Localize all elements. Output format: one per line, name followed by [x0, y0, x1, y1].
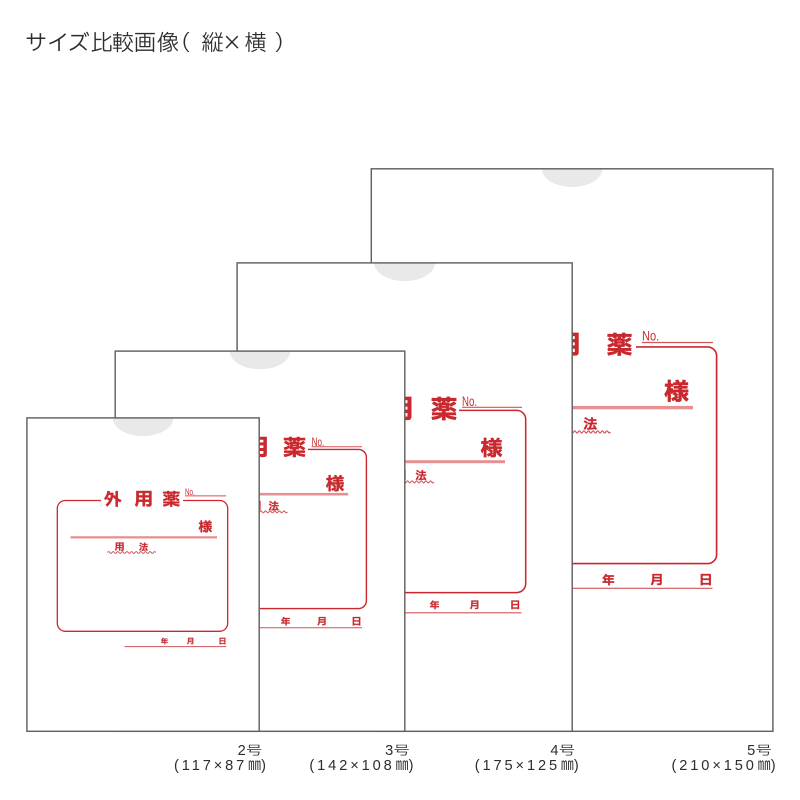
svg-text:No.: No. — [462, 394, 477, 409]
svg-text:2: 2 — [238, 743, 246, 759]
svg-text:): ) — [771, 758, 776, 774]
svg-text:5: 5 — [747, 743, 755, 759]
svg-text:No.: No. — [642, 328, 659, 344]
svg-text:): ) — [574, 758, 579, 774]
svg-text:(175×125: (175×125 — [475, 758, 560, 774]
svg-text:3: 3 — [385, 743, 393, 759]
svg-text:(210×150: (210×150 — [672, 758, 757, 774]
svg-text:): ) — [409, 758, 414, 774]
svg-text:(142×108: (142×108 — [309, 758, 394, 774]
svg-text:4: 4 — [550, 743, 558, 759]
svg-text:(117×87: (117×87 — [174, 758, 247, 774]
svg-text:): ) — [261, 758, 266, 774]
